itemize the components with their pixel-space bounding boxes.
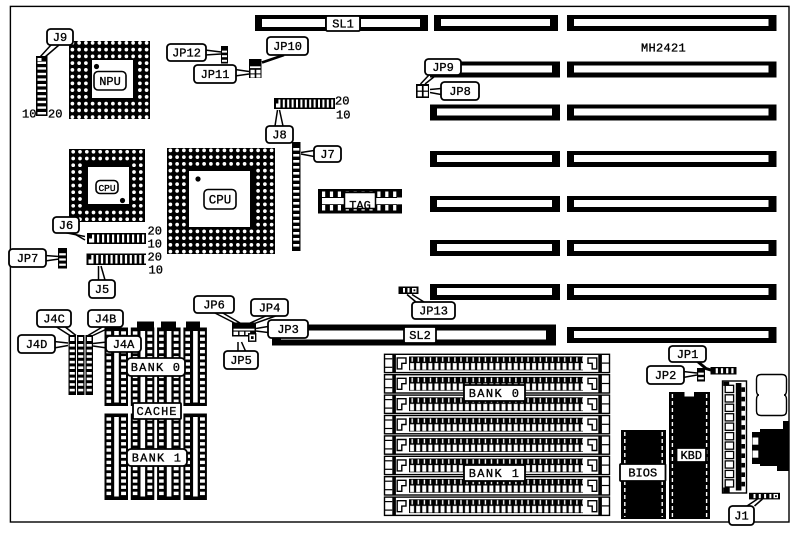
svg-text:10: 10 — [22, 108, 36, 122]
svg-text:BANK 0: BANK 0 — [131, 361, 181, 375]
svg-text:JP8: JP8 — [449, 85, 471, 99]
svg-text:JP9: JP9 — [432, 61, 454, 75]
svg-text:JP7: JP7 — [17, 252, 39, 266]
svg-text:20: 20 — [335, 95, 349, 109]
svg-text:JP11: JP11 — [201, 68, 230, 82]
svg-text:J1: J1 — [734, 510, 748, 524]
svg-text:JP13: JP13 — [419, 305, 448, 319]
svg-text:JP4: JP4 — [259, 302, 281, 316]
svg-text:BIOS: BIOS — [628, 467, 657, 481]
svg-text:CPU: CPU — [209, 193, 232, 207]
svg-text:20: 20 — [48, 108, 62, 122]
svg-text:BANK 0: BANK 0 — [469, 387, 521, 401]
svg-text:BANK 1: BANK 1 — [132, 452, 182, 466]
svg-text:KBD: KBD — [680, 449, 702, 463]
svg-text:J4A: J4A — [113, 338, 135, 352]
svg-text:JP2: JP2 — [655, 369, 677, 383]
svg-text:SL1: SL1 — [332, 18, 354, 32]
svg-text:CPU: CPU — [98, 183, 115, 194]
svg-text:J7: J7 — [320, 148, 334, 162]
svg-text:JP12: JP12 — [172, 47, 201, 61]
svg-text:J6: J6 — [59, 219, 73, 233]
svg-text:JP5: JP5 — [230, 354, 252, 368]
svg-text:JP1: JP1 — [677, 348, 699, 362]
svg-text:10: 10 — [336, 109, 350, 123]
svg-text:J4C: J4C — [43, 313, 65, 327]
svg-text:J4B: J4B — [95, 313, 117, 327]
svg-text:J4D: J4D — [26, 338, 48, 352]
svg-text:CACHE: CACHE — [136, 405, 177, 419]
svg-text:NPU: NPU — [99, 75, 121, 89]
svg-text:SL2: SL2 — [409, 329, 431, 343]
svg-text:10: 10 — [149, 264, 163, 278]
svg-text:TAG: TAG — [349, 199, 371, 213]
svg-text:20: 20 — [148, 225, 162, 239]
svg-text:J8: J8 — [272, 129, 286, 143]
svg-text:MH2421: MH2421 — [641, 42, 686, 56]
svg-text:JP6: JP6 — [203, 299, 225, 313]
svg-text:JP10: JP10 — [273, 40, 302, 54]
svg-text:10: 10 — [148, 238, 162, 252]
svg-text:20: 20 — [148, 251, 162, 265]
svg-text:JP3: JP3 — [277, 323, 299, 337]
svg-text:BANK 1: BANK 1 — [469, 467, 521, 481]
svg-text:J9: J9 — [53, 31, 67, 45]
svg-text:J5: J5 — [95, 283, 109, 297]
